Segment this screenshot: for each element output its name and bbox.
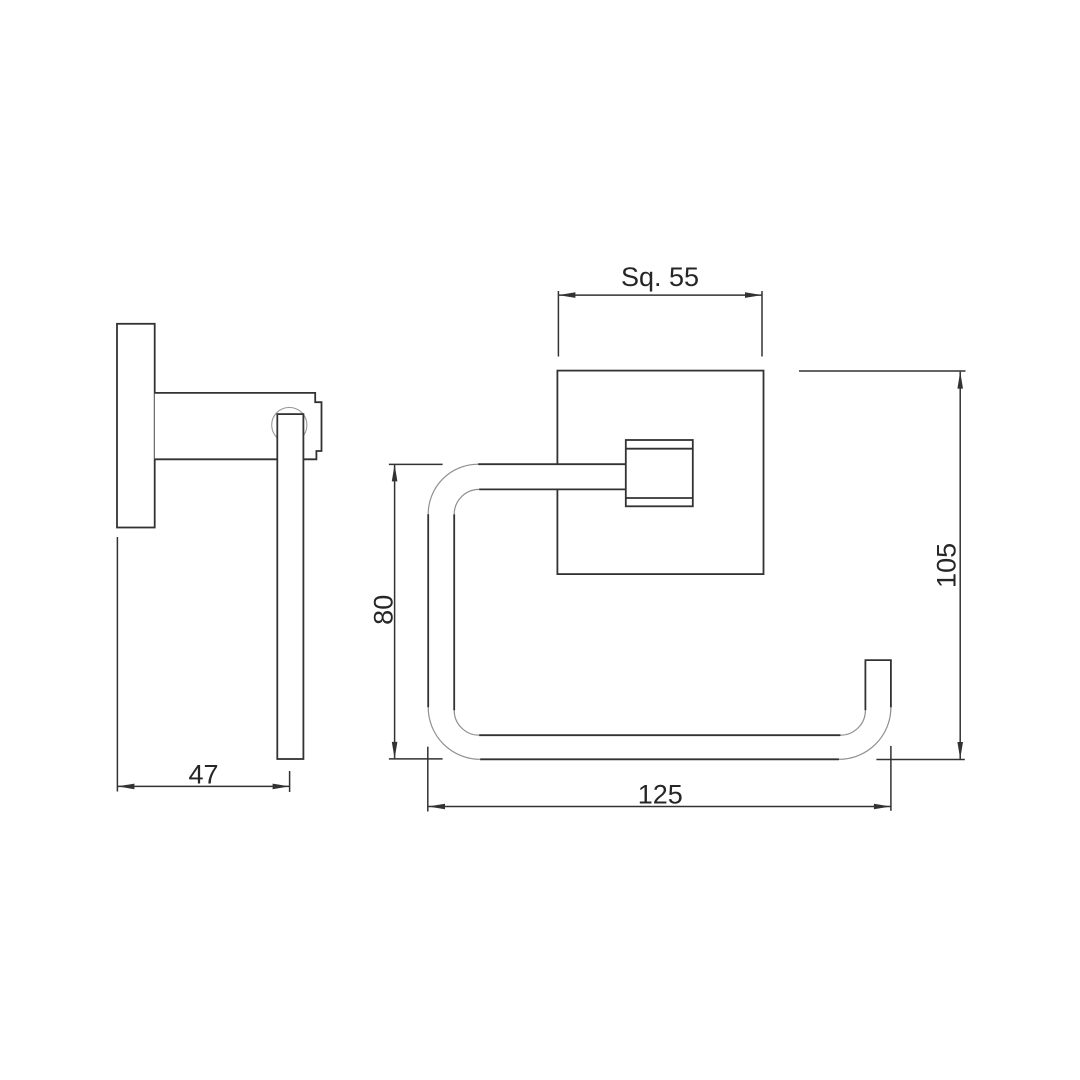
svg-text:80: 80 — [368, 595, 398, 625]
svg-text:47: 47 — [188, 760, 218, 790]
svg-text:105: 105 — [931, 543, 961, 588]
svg-text:Sq. 55: Sq. 55 — [621, 262, 699, 292]
svg-text:125: 125 — [638, 779, 683, 809]
